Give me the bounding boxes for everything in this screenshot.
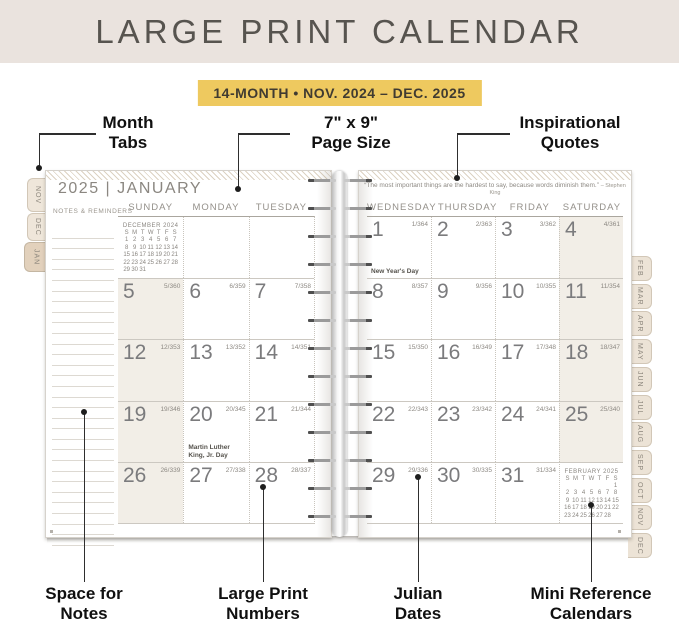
date-number: 23 <box>437 404 460 425</box>
calendar-cell: 55/360 <box>118 278 183 339</box>
calendar-cell: 2222/343 <box>367 401 431 462</box>
mini-date: 23 <box>564 513 572 521</box>
julian-date: 26/339 <box>160 467 180 474</box>
julian-date: 18/347 <box>600 344 620 351</box>
calendar-cell: 1010/355 <box>495 278 559 339</box>
calendar-cell: 2929/336 <box>367 462 431 523</box>
julian-date: 31/334 <box>536 467 556 474</box>
mini-date: 18 <box>580 505 588 513</box>
mini-date: 8 <box>612 490 620 498</box>
calendar-cell: 33/362 <box>495 217 559 278</box>
mini-date <box>171 267 179 275</box>
calendar-cell: 2121/344 <box>249 401 314 462</box>
callout-text: Tabs <box>78 133 178 153</box>
mini-date: 9 <box>131 245 139 253</box>
callout-connector-large-print-numbers <box>263 487 265 582</box>
callout-connector-inspirational-quotes <box>457 133 459 178</box>
julian-date: 30/335 <box>472 467 492 474</box>
spiral-coil <box>308 512 372 521</box>
calendar-cell: 1616/349 <box>431 339 495 400</box>
date-number: 7 <box>255 281 267 302</box>
month-tab-label: DEC <box>34 218 41 236</box>
mini-date: 8 <box>123 245 131 253</box>
julian-date: 3/362 <box>540 221 556 228</box>
calendar-cell: 66/359 <box>183 278 248 339</box>
month-tab-label: JUL <box>636 400 643 415</box>
julian-date: 20/345 <box>226 406 246 413</box>
julian-date: 16/349 <box>472 344 492 351</box>
month-tab-label: NOV <box>636 508 643 526</box>
mini-day-letter: W <box>147 230 155 237</box>
mini-date <box>147 267 155 275</box>
mini-date: 27 <box>163 260 171 268</box>
mini-calendar-title: DECEMBER 2024 <box>122 223 180 229</box>
callout-label-julian-dates: Julian Dates <box>368 584 468 625</box>
julian-date: 27/338 <box>226 467 246 474</box>
julian-date: 4/361 <box>604 221 620 228</box>
mini-date: 9 <box>564 498 572 506</box>
calendar-cell: 2323/342 <box>431 401 495 462</box>
mini-date: 29 <box>123 267 131 275</box>
julian-date: 6/359 <box>229 283 245 290</box>
date-number: 26 <box>123 465 146 486</box>
mini-date: 17 <box>139 252 147 260</box>
calendar-cell: 11/364New Year's Day <box>367 217 431 278</box>
mini-calendar-grid: SMTWTFS123456789101112131415161718192021… <box>122 230 180 275</box>
mini-date: 4 <box>147 237 155 245</box>
mini-date <box>612 513 620 521</box>
julian-date: 5/360 <box>164 283 180 290</box>
date-number: 3 <box>501 219 513 240</box>
mini-date: 25 <box>580 513 588 521</box>
notes-line <box>52 323 114 334</box>
month-tab-left-dec: DEC <box>27 213 47 241</box>
mini-date: 5 <box>155 237 163 245</box>
date-number: 27 <box>189 465 212 486</box>
mini-day-letter: S <box>564 476 572 483</box>
callout-dot-page-size <box>235 186 241 192</box>
calendar-cell <box>183 217 248 278</box>
mini-date: 10 <box>139 245 147 253</box>
mini-date: 2 <box>564 490 572 498</box>
month-tab-label: OCT <box>636 482 643 500</box>
mini-date: 3 <box>139 237 147 245</box>
mini-date: 7 <box>171 237 179 245</box>
julian-date: 19/346 <box>160 406 180 413</box>
julian-date: 24/341 <box>536 406 556 413</box>
callout-text: Dates <box>368 604 468 624</box>
julian-date: 8/357 <box>412 283 428 290</box>
julian-date: 15/350 <box>408 344 428 351</box>
mini-date: 16 <box>564 505 572 513</box>
callout-label-space-for-notes: Space for Notes <box>24 584 144 625</box>
callout-connector-month-tabs <box>39 133 41 168</box>
date-number: 18 <box>565 342 588 363</box>
date-number: 21 <box>255 404 278 425</box>
right-page: “The most important things are the harde… <box>358 170 632 538</box>
mini-day-letter: T <box>155 230 163 237</box>
callout-label-page-size: 7" x 9" Page Size <box>286 113 416 154</box>
notes-line <box>52 292 114 303</box>
spiral-coil <box>308 484 372 493</box>
mini-date <box>163 267 171 275</box>
month-tab-label: AUG <box>636 425 643 443</box>
mini-date: 6 <box>596 490 604 498</box>
callout-connector-julian-dates <box>418 477 420 582</box>
mini-date: 10 <box>572 498 580 506</box>
date-number: 17 <box>501 342 524 363</box>
day-header-sunday: SUNDAY <box>118 202 183 213</box>
callout-text: Notes <box>24 604 144 624</box>
quote-body: “The most important things are the harde… <box>364 182 599 189</box>
notes-line <box>52 334 114 345</box>
julian-date: 17/348 <box>536 344 556 351</box>
date-number: 31 <box>501 465 524 486</box>
spiral-coils <box>308 176 372 536</box>
day-header-row-right: WEDNESDAYTHURSDAYFRIDAYSATURDAY <box>367 202 623 213</box>
mini-day-letter: S <box>123 230 131 237</box>
callout-connector-mini-reference-calendars <box>591 505 593 582</box>
calendar-cell: 3030/335 <box>431 462 495 523</box>
julian-date: 2/363 <box>476 221 492 228</box>
mini-day-letter: T <box>580 476 588 483</box>
date-number: 25 <box>565 404 588 425</box>
page-edge-texture <box>359 171 631 180</box>
notes-line <box>52 398 114 409</box>
left-page: 2025 | JANUARY NOTES & REMINDERS SUNDAYM… <box>45 170 332 538</box>
month-tab-label: FEB <box>636 260 643 277</box>
date-number: 5 <box>123 281 135 302</box>
day-header-thursday: THURSDAY <box>437 202 499 213</box>
mini-date: 2 <box>131 237 139 245</box>
mini-date <box>572 483 580 491</box>
calendar-grid-left: DECEMBER 2024SMTWTFS12345678910111213141… <box>118 216 315 524</box>
calendar-cell: 1919/346 <box>118 401 183 462</box>
callout-dot-inspirational-quotes <box>454 175 460 181</box>
calendar-cell: DECEMBER 2024SMTWTFS12345678910111213141… <box>118 217 183 278</box>
mini-date: 25 <box>147 260 155 268</box>
calendar-cell: 1717/348 <box>495 339 559 400</box>
callout-dot-large-print-numbers <box>260 484 266 490</box>
day-header-tuesday: TUESDAY <box>249 202 314 213</box>
mini-date: 11 <box>147 245 155 253</box>
callout-text: Month <box>78 113 178 133</box>
notes-line <box>52 387 114 398</box>
calendar-cell: 2424/341 <box>495 401 559 462</box>
mini-date <box>564 483 572 491</box>
calendar-cell: 1313/352 <box>183 339 248 400</box>
mini-date: 28 <box>604 513 612 521</box>
spiral-coil <box>308 260 372 269</box>
callout-label-mini-reference-calendars: Mini Reference Calendars <box>506 584 676 625</box>
date-number: 2 <box>437 219 449 240</box>
julian-date: 11/354 <box>601 283 620 290</box>
product-title: LARGE PRINT CALENDAR <box>95 13 583 51</box>
calendar-cell: 2828/337 <box>249 462 314 523</box>
notes-line <box>52 355 114 366</box>
mini-date: 20 <box>163 252 171 260</box>
mini-date: 22 <box>612 505 620 513</box>
date-number: 11 <box>565 281 587 302</box>
mini-day-letter: M <box>572 476 580 483</box>
callout-label-inspirational-quotes: Inspirational Quotes <box>500 113 640 154</box>
month-tab-label: MAY <box>636 343 643 361</box>
callout-text: Julian <box>368 584 468 604</box>
callout-text: 7" x 9" <box>286 113 416 133</box>
callout-connector-page-size <box>238 133 290 135</box>
mini-calendar-title: FEBRUARY 2025 <box>563 469 621 475</box>
mini-date: 30 <box>131 267 139 275</box>
julian-date: 10/355 <box>536 283 556 290</box>
date-number: 28 <box>255 465 278 486</box>
day-header-wednesday: WEDNESDAY <box>367 202 437 213</box>
date-number: 13 <box>189 342 212 363</box>
callout-dot-julian-dates <box>415 474 421 480</box>
julian-date: 29/336 <box>408 467 428 474</box>
page-number-mark <box>618 530 621 533</box>
mini-date: 21 <box>604 505 612 513</box>
mini-day-letter: T <box>596 476 604 483</box>
callout-dot-month-tabs <box>36 165 42 171</box>
product-image: LARGE PRINT CALENDAR 14-MONTH • NOV. 202… <box>0 0 679 628</box>
mini-date: 5 <box>588 490 596 498</box>
calendar-cell: 1212/353 <box>118 339 183 400</box>
date-number: 16 <box>437 342 460 363</box>
date-number: 19 <box>123 404 146 425</box>
mini-date: 4 <box>580 490 588 498</box>
mini-day-letter: F <box>163 230 171 237</box>
mini-date: 24 <box>139 260 147 268</box>
callout-connector-page-size <box>238 133 240 189</box>
calendar-cell: 1515/350 <box>367 339 431 400</box>
mini-date: 13 <box>163 245 171 253</box>
notes-line <box>52 376 114 387</box>
callout-text: Space for <box>24 584 144 604</box>
callout-label-large-print-numbers: Large Print Numbers <box>188 584 338 625</box>
mini-date: 14 <box>171 245 179 253</box>
mini-date <box>588 483 596 491</box>
date-number: 10 <box>501 281 524 302</box>
mini-date: 15 <box>123 252 131 260</box>
julian-date: 13/352 <box>226 344 246 351</box>
mini-date: 23 <box>131 260 139 268</box>
julian-date: 9/356 <box>476 283 492 290</box>
month-tab-label: SEP <box>636 454 643 471</box>
day-header-saturday: SATURDAY <box>561 202 623 213</box>
date-number: 6 <box>189 281 201 302</box>
notes-line <box>52 239 114 250</box>
quote-text: “The most important things are the harde… <box>359 182 631 196</box>
spiral-coil <box>308 428 372 437</box>
mini-date: 13 <box>596 498 604 506</box>
notes-line <box>52 281 114 292</box>
calendar-cell: 2525/340 <box>559 401 623 462</box>
mini-day-letter: F <box>604 476 612 483</box>
callout-text: Page Size <box>286 133 416 153</box>
mini-date: 19 <box>155 252 163 260</box>
day-header-friday: FRIDAY <box>499 202 561 213</box>
date-number: 1 <box>372 219 384 240</box>
mini-date: 22 <box>123 260 131 268</box>
mini-date <box>155 267 163 275</box>
callout-text: Large Print <box>188 584 338 604</box>
julian-date: 25/340 <box>600 406 620 413</box>
mini-day-letter: S <box>171 230 179 237</box>
calendar-cell: 1818/347 <box>559 339 623 400</box>
mini-date <box>580 483 588 491</box>
callout-dot-mini-reference-calendars <box>588 502 594 508</box>
notes-line <box>52 228 114 239</box>
mini-day-letter: W <box>588 476 596 483</box>
calendar-cell: 3131/334 <box>495 462 559 523</box>
notes-line <box>52 260 114 271</box>
mini-date: 18 <box>147 252 155 260</box>
mini-date: 31 <box>139 267 147 275</box>
edition-badge: 14-MONTH • NOV. 2024 – DEC. 2025 <box>197 80 481 106</box>
date-number: 14 <box>255 342 278 363</box>
calendar-cell: 99/356 <box>431 278 495 339</box>
date-number: 15 <box>372 342 395 363</box>
mini-day-letter: M <box>131 230 139 237</box>
notes-line <box>52 313 114 324</box>
mini-date: 14 <box>604 498 612 506</box>
spiral-coil <box>308 344 372 353</box>
date-number: 22 <box>372 404 395 425</box>
callout-label-month-tabs: Month Tabs <box>78 113 178 154</box>
date-number: 9 <box>437 281 449 302</box>
julian-date: 1/364 <box>412 221 428 228</box>
mini-date: 26 <box>155 260 163 268</box>
callout-dot-space-for-notes <box>81 409 87 415</box>
mini-day-letter: T <box>139 230 147 237</box>
mini-date: 27 <box>596 513 604 521</box>
day-header-row-left: SUNDAYMONDAYTUESDAY <box>118 202 314 213</box>
mini-date: 21 <box>171 252 179 260</box>
spiral-coil <box>308 176 372 185</box>
holiday-label: New Year's Day <box>371 268 428 276</box>
calendar-cell: 77/358 <box>249 278 314 339</box>
callout-text: Mini Reference <box>506 584 676 604</box>
mini-date: 17 <box>572 505 580 513</box>
spiral-coil <box>308 456 372 465</box>
mini-day-letter: S <box>612 476 620 483</box>
calendar-cell: 44/361 <box>559 217 623 278</box>
callout-text: Calendars <box>506 604 676 624</box>
mini-date: 3 <box>572 490 580 498</box>
spiral-coil <box>308 372 372 381</box>
mini-date: 28 <box>171 260 179 268</box>
julian-date: 12/353 <box>160 344 180 351</box>
callout-connector-space-for-notes <box>84 412 86 582</box>
notes-line <box>52 270 114 281</box>
callout-text: Inspirational <box>500 113 640 133</box>
month-tab-label: JUN <box>636 371 643 388</box>
mini-date: 16 <box>131 252 139 260</box>
julian-date: 22/343 <box>408 406 428 413</box>
notes-line <box>52 302 114 313</box>
spiral-coil <box>308 232 372 241</box>
julian-date: 23/342 <box>472 406 492 413</box>
calendar-cell: 1414/351 <box>249 339 314 400</box>
mini-date: 1 <box>123 237 131 245</box>
mini-date: 6 <box>163 237 171 245</box>
date-number: 8 <box>372 281 384 302</box>
holiday-label: Martin Luther King, Jr. Day <box>188 444 245 460</box>
page-title: 2025 | JANUARY <box>58 180 202 198</box>
page-edge-texture <box>46 171 331 180</box>
calendar-cell: 1111/354 <box>559 278 623 339</box>
month-tab-label: APR <box>636 315 643 332</box>
month-tab-label: DEC <box>636 537 643 555</box>
mini-date: 24 <box>572 513 580 521</box>
mini-calendar-december: DECEMBER 2024SMTWTFS12345678910111213141… <box>122 223 180 275</box>
spiral-coil <box>308 288 372 297</box>
spiral-coil <box>308 316 372 325</box>
month-tab-label: MAR <box>636 287 643 306</box>
month-tab-label: NOV <box>34 186 41 204</box>
calendar-cell: 2020/345Martin Luther King, Jr. Day <box>183 401 248 462</box>
callout-text: Quotes <box>500 133 640 153</box>
page-number-mark <box>50 530 53 533</box>
mini-date <box>604 483 612 491</box>
callout-text: Numbers <box>188 604 338 624</box>
date-number: 12 <box>123 342 146 363</box>
date-number: 24 <box>501 404 524 425</box>
header-banner: LARGE PRINT CALENDAR <box>0 0 679 63</box>
calendar-cell: 88/357 <box>367 278 431 339</box>
mini-date: 20 <box>596 505 604 513</box>
day-header-monday: MONDAY <box>183 202 248 213</box>
mini-date: 7 <box>604 490 612 498</box>
spiral-coil <box>308 400 372 409</box>
calendar-grid-right: 11/364New Year's Day22/36333/36244/36188… <box>367 216 623 524</box>
notes-line <box>52 366 114 377</box>
mini-date: 11 <box>580 498 588 506</box>
calendar-cell: 2626/339 <box>118 462 183 523</box>
mini-date: 15 <box>612 498 620 506</box>
month-tab-left-nov: NOV <box>27 178 47 212</box>
date-number: 4 <box>565 219 577 240</box>
month-tab-label: JAN <box>33 249 40 265</box>
spiral-coil <box>308 204 372 213</box>
notes-line <box>52 345 114 356</box>
date-number: 29 <box>372 465 395 486</box>
month-tab-left-jan: JAN <box>24 242 47 272</box>
date-number: 30 <box>437 465 460 486</box>
notes-line <box>52 249 114 260</box>
mini-date <box>596 483 604 491</box>
calendar-cell <box>249 217 314 278</box>
calendar-cell: 22/363 <box>431 217 495 278</box>
mini-date: 1 <box>612 483 620 491</box>
date-number: 20 <box>189 404 212 425</box>
mini-date: 12 <box>155 245 163 253</box>
calendar-cell: 2727/338 <box>183 462 248 523</box>
